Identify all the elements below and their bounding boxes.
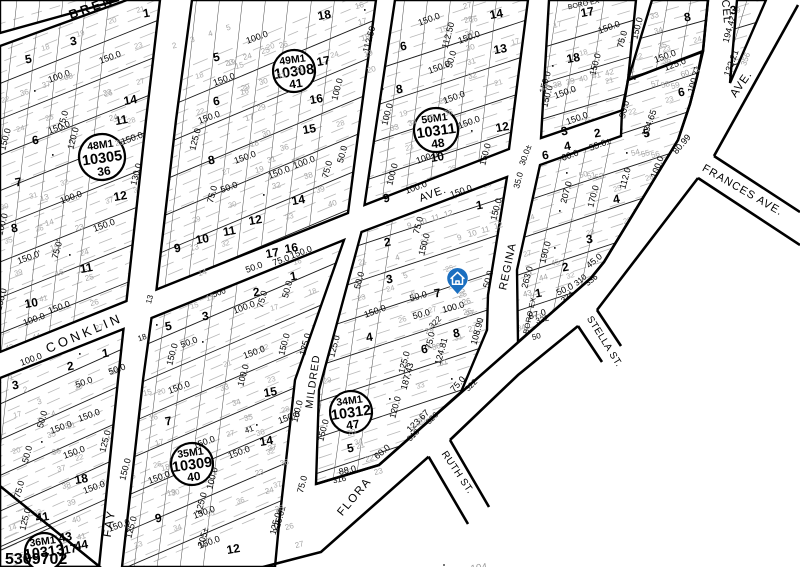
svg-text:14: 14 — [489, 6, 505, 22]
svg-text:40: 40 — [186, 469, 201, 485]
svg-text:12: 12 — [248, 212, 264, 228]
svg-text:17: 17 — [316, 53, 332, 69]
svg-text:36: 36 — [96, 163, 111, 179]
svg-text:18: 18 — [566, 50, 582, 66]
svg-text:12: 12 — [495, 119, 511, 135]
svg-text:15: 15 — [263, 384, 279, 400]
svg-text:13: 13 — [493, 41, 509, 57]
svg-text:18: 18 — [317, 7, 333, 23]
svg-text:14: 14 — [291, 192, 307, 208]
svg-text:41: 41 — [288, 76, 303, 92]
svg-text:41: 41 — [35, 509, 51, 525]
svg-text:14: 14 — [123, 92, 139, 108]
svg-text:12: 12 — [113, 188, 129, 204]
svg-text:5309702: 5309702 — [5, 551, 67, 567]
svg-text:16: 16 — [309, 91, 325, 107]
svg-text:12: 12 — [226, 541, 242, 557]
svg-text:43: 43 — [58, 529, 74, 545]
svg-text:10: 10 — [24, 295, 40, 311]
svg-text:15: 15 — [302, 121, 318, 137]
